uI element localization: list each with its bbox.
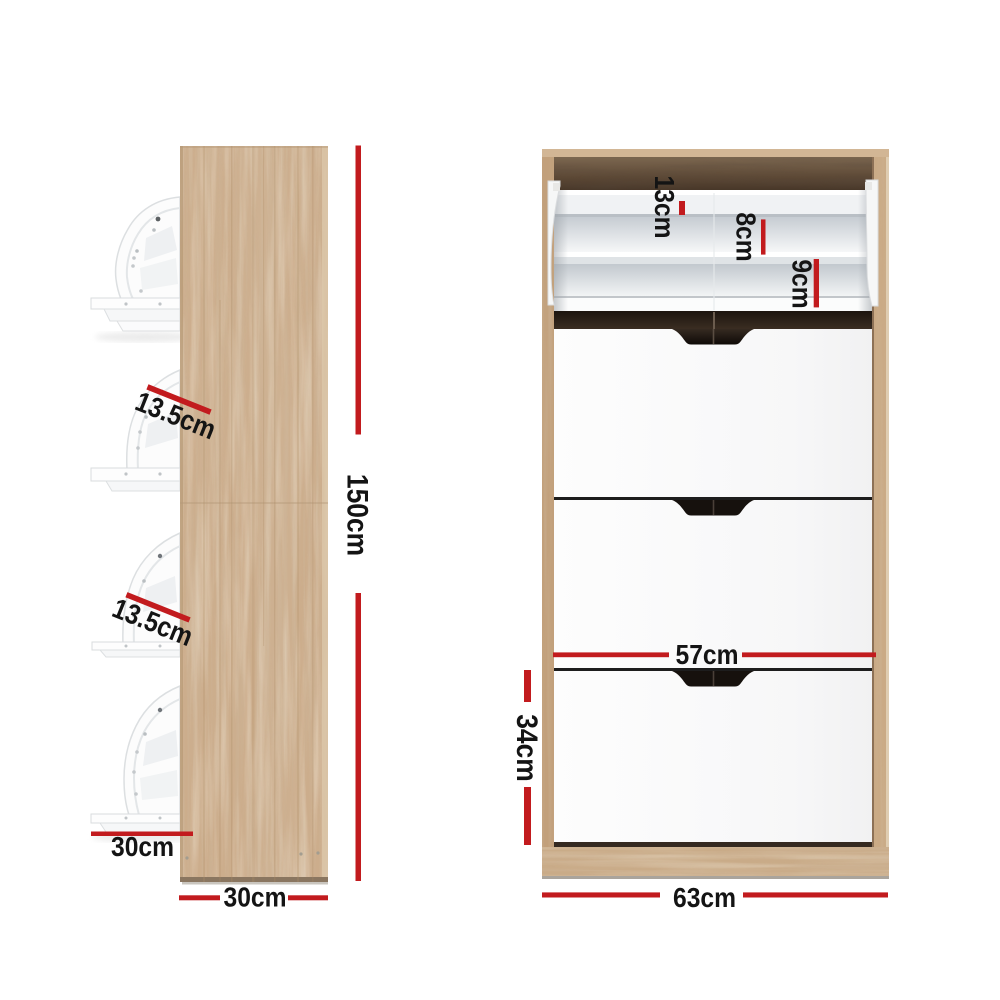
svg-text:30cm: 30cm <box>111 831 174 863</box>
svg-text:8cm: 8cm <box>730 212 762 261</box>
svg-text:63cm: 63cm <box>673 882 736 914</box>
svg-text:13cm: 13cm <box>649 176 681 239</box>
svg-text:150cm: 150cm <box>341 474 375 556</box>
svg-text:9cm: 9cm <box>786 259 818 308</box>
svg-text:34cm: 34cm <box>511 714 545 782</box>
svg-text:30cm: 30cm <box>224 881 287 913</box>
svg-text:57cm: 57cm <box>676 639 739 671</box>
